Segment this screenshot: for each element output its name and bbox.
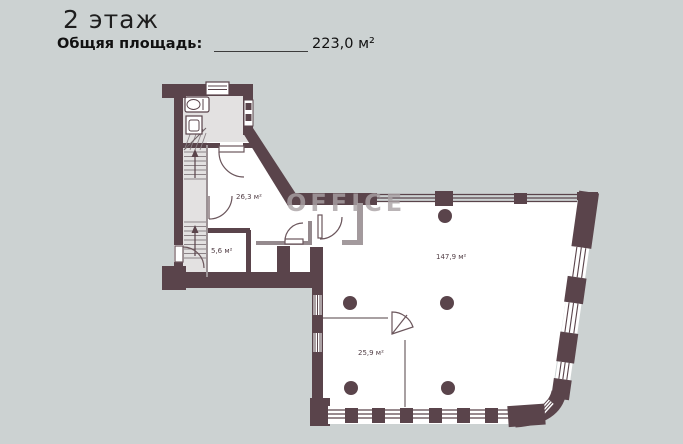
floor-plan-drawing [0, 0, 683, 444]
room-area-label-147-9: 147,9 м² [436, 253, 466, 261]
floor-plan-page: 2 этаж Общяя площадь: 223,0 м² [0, 0, 683, 444]
column-dot [441, 381, 455, 395]
column-dot [344, 381, 358, 395]
toilet-symbol [186, 116, 202, 134]
column-dot [438, 209, 452, 223]
sink-symbol [185, 97, 209, 112]
floor-areas [183, 96, 580, 408]
room-area-label-26-3: 26,3 м² [236, 193, 262, 201]
window-box-symbol [206, 82, 229, 95]
room-area-label-5-6: 5,6 м² [211, 247, 232, 255]
column-dot [440, 296, 454, 310]
column-dot [343, 296, 357, 310]
watermark-text: OFFICE [286, 189, 406, 217]
shaft-symbol [244, 100, 253, 126]
bottom-window-band [328, 404, 546, 428]
room-area-label-25-9: 25,9 м² [358, 349, 384, 357]
